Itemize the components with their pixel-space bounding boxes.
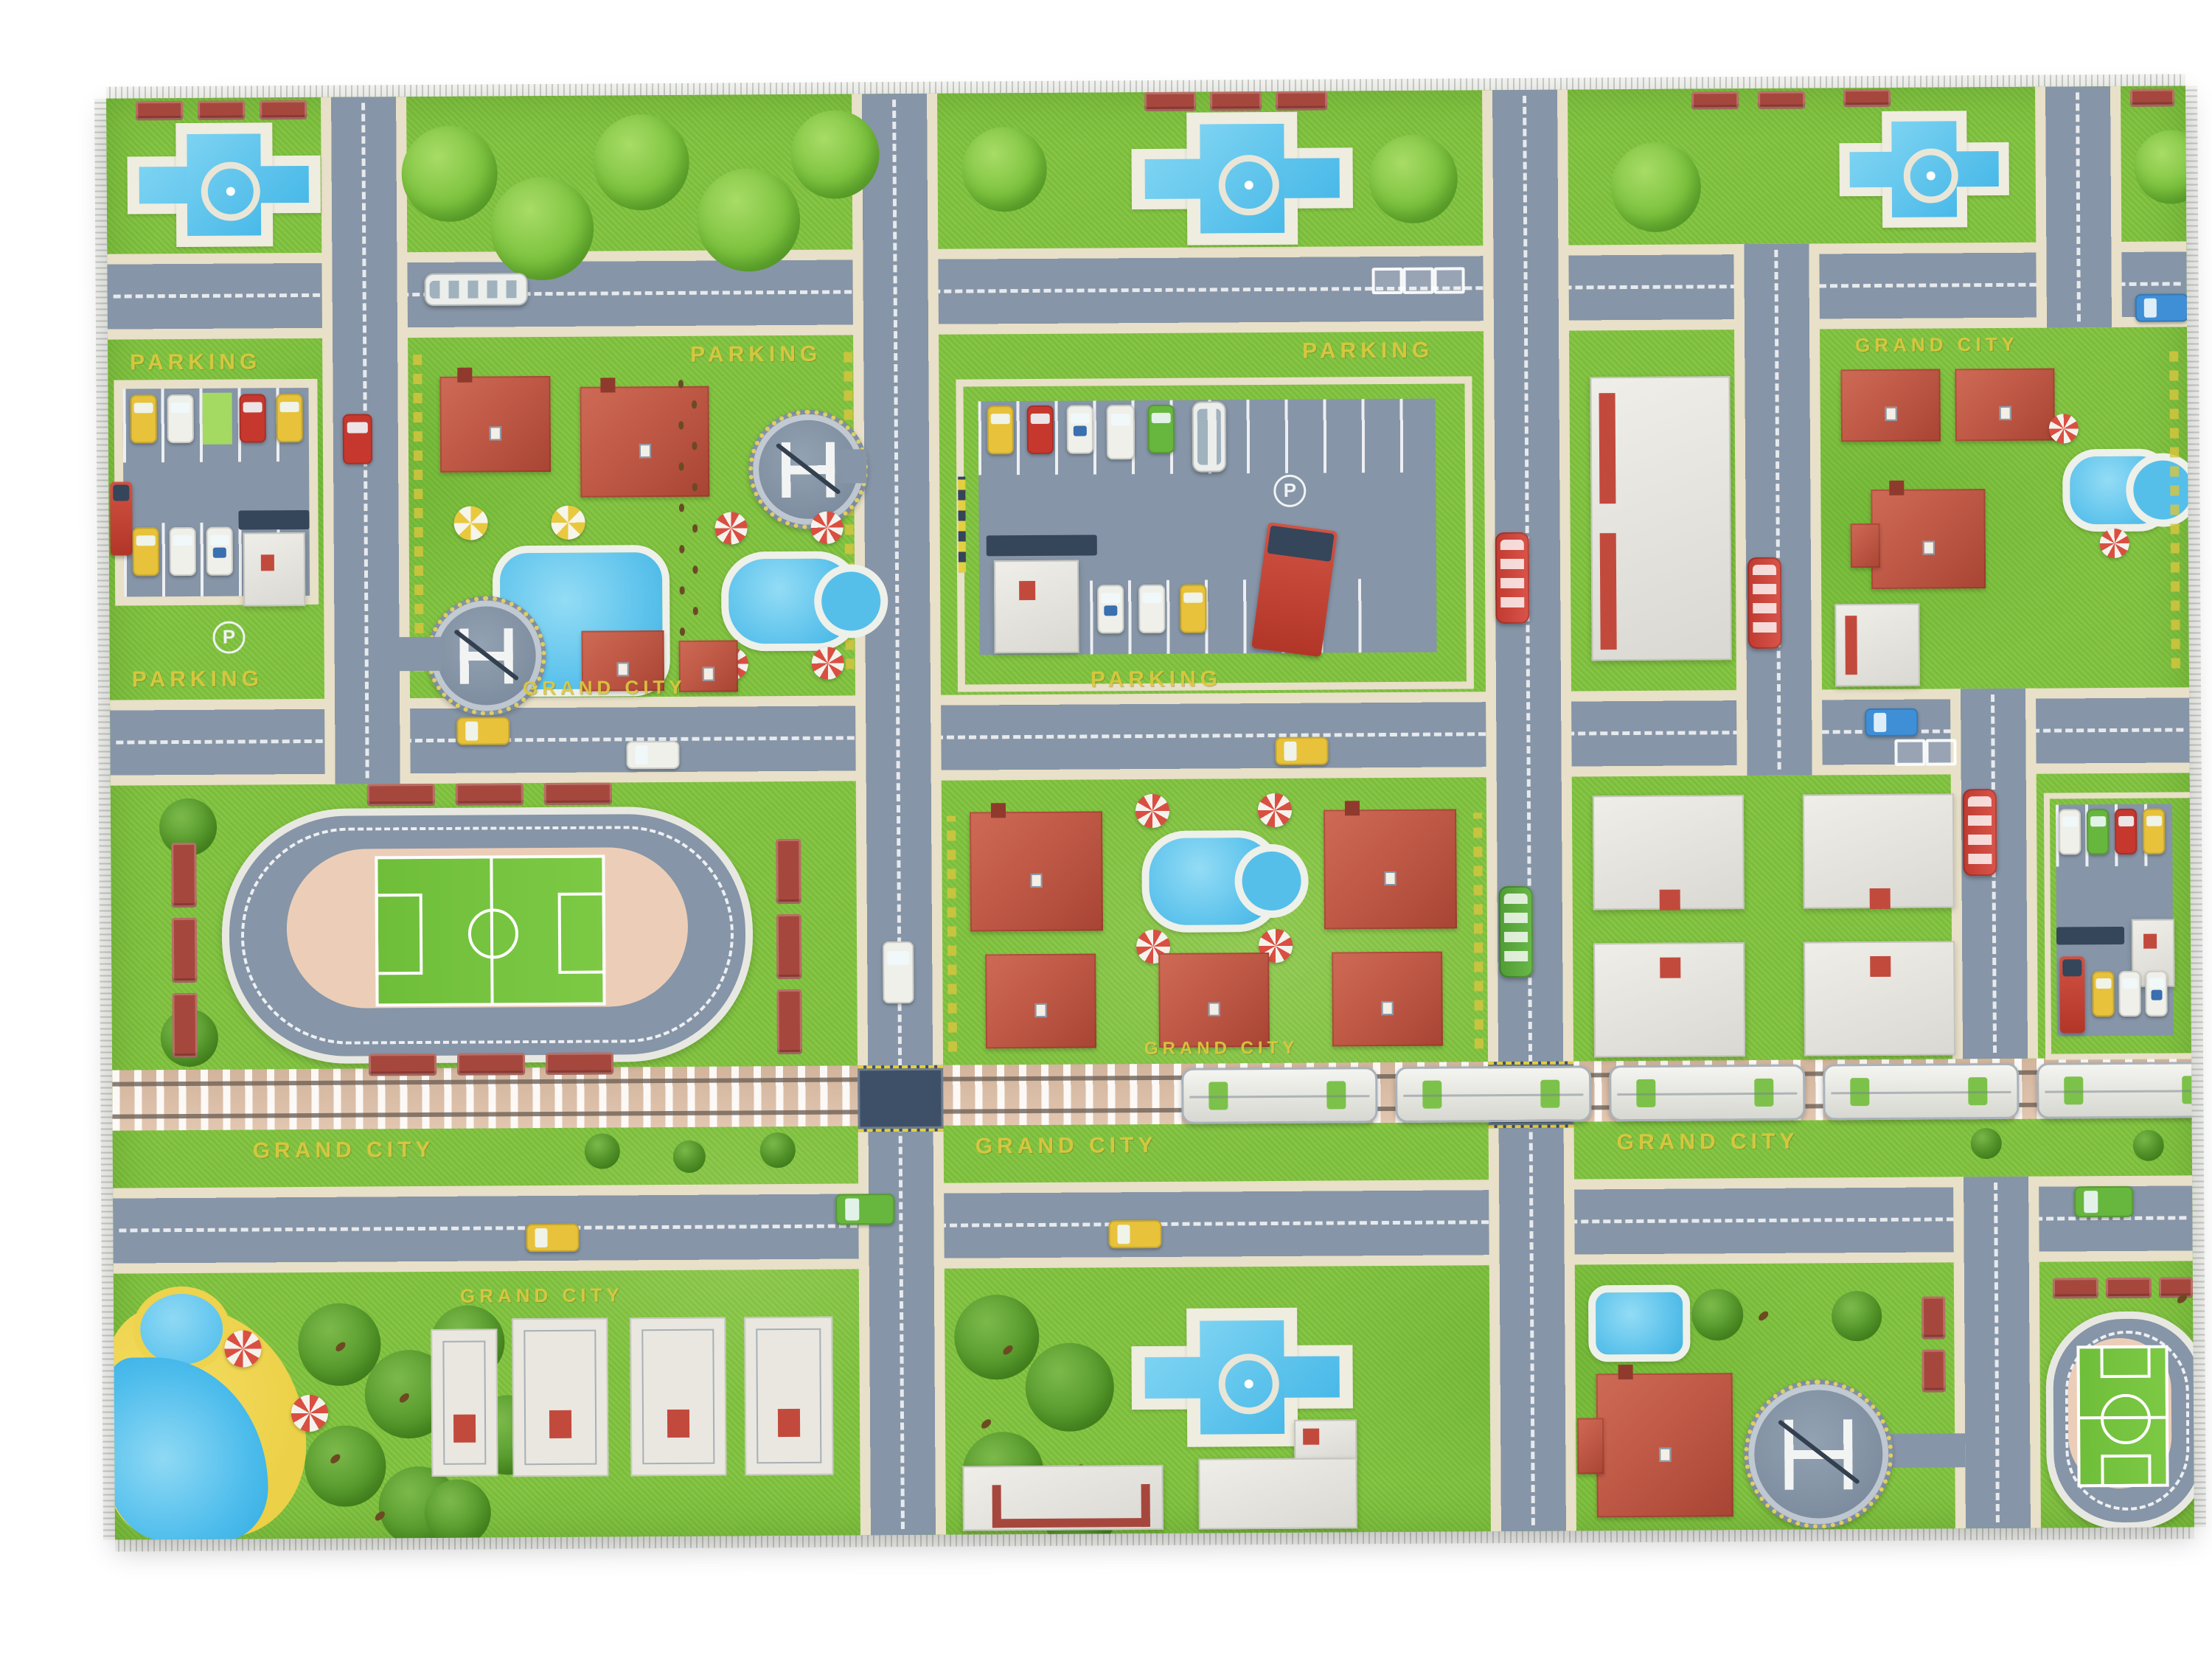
swimming-pool <box>1141 830 1282 933</box>
red-bus <box>1495 532 1530 624</box>
stadium-stand <box>172 993 198 1058</box>
city-play-rug: PARKING P PARKING PARKING <box>106 86 2194 1539</box>
goal-box <box>2100 1345 2151 1378</box>
parasol <box>291 1395 328 1432</box>
tree <box>961 127 1047 212</box>
green-car <box>1148 405 1175 453</box>
house-wing <box>1577 1418 1604 1474</box>
stadium-stand <box>369 1054 437 1076</box>
building <box>1834 604 1920 687</box>
hedge-border <box>413 355 424 672</box>
white-bus <box>425 273 528 306</box>
fountain-plaza <box>1839 111 2009 228</box>
red-car <box>1027 405 1054 454</box>
house <box>439 376 551 473</box>
crosswalk <box>827 1152 975 1300</box>
police-car <box>1067 405 1093 453</box>
police-car <box>206 527 233 576</box>
railroad-crossing <box>858 1065 944 1132</box>
white-bus <box>1192 401 1227 472</box>
bus-stop-marking <box>1925 739 1956 765</box>
white-car <box>626 741 679 769</box>
parasol <box>812 647 844 680</box>
taxi <box>456 717 509 745</box>
white-van <box>883 941 914 1003</box>
red-truck <box>2059 956 2085 1033</box>
helipad <box>1744 1379 1893 1529</box>
stadium-stand <box>776 839 801 904</box>
soccer-field <box>375 855 605 1007</box>
tree <box>1025 1343 1114 1432</box>
bus-stop-marking <box>1433 267 1464 293</box>
blue-car <box>2135 293 2188 321</box>
parasol <box>1258 793 1292 827</box>
crosswalk <box>1458 1148 1606 1296</box>
stadium-stand <box>172 918 198 983</box>
white-car <box>1138 585 1165 633</box>
tree <box>585 1133 620 1169</box>
hedge-border <box>947 816 957 1052</box>
red-car <box>2115 809 2137 854</box>
train-car <box>1823 1063 2019 1121</box>
park-bench <box>260 100 307 119</box>
soccer-field <box>2076 1345 2168 1488</box>
hedge-text: PARKING <box>1302 338 1433 364</box>
building <box>1198 1458 1357 1529</box>
tree <box>305 1425 386 1507</box>
tree <box>673 1141 706 1173</box>
building-accent <box>1870 888 1891 909</box>
train-car <box>1395 1065 1591 1123</box>
house <box>1158 953 1270 1048</box>
hedge-text: GRAND CITY <box>523 676 686 700</box>
park-bench <box>1758 91 1805 109</box>
bus-stop-marking <box>1894 739 1925 766</box>
taxi <box>133 527 159 576</box>
hedge-text: PARKING <box>1091 666 1222 692</box>
helipad-access-road <box>390 637 442 671</box>
hedge-text: GRAND CITY <box>975 1133 1158 1160</box>
parasol <box>551 506 585 540</box>
crosswalk <box>821 217 970 366</box>
bus-stop-marking <box>1371 268 1402 294</box>
taxi <box>2143 809 2165 854</box>
taxi <box>276 394 303 442</box>
park-bench <box>1276 91 1327 111</box>
white-van <box>2118 971 2140 1017</box>
crosswalk <box>824 664 973 812</box>
taxi <box>1108 1220 1161 1248</box>
tree <box>1368 134 1458 223</box>
hedge-text: PARKING <box>130 349 261 375</box>
building-accent <box>1660 958 1680 978</box>
building <box>962 1465 1164 1531</box>
stadium-stand <box>2159 1277 2193 1298</box>
park-bench <box>1210 91 1262 111</box>
blue-car <box>1865 708 1918 737</box>
building <box>1590 376 1731 661</box>
footprint-trail <box>674 375 702 670</box>
white-car <box>167 394 194 443</box>
house-plot <box>431 1329 498 1477</box>
police-car <box>1097 585 1124 633</box>
parasol <box>714 512 747 544</box>
parasol <box>453 506 487 540</box>
taxi <box>987 405 1014 454</box>
parking-barrier <box>958 477 966 573</box>
parasol <box>224 1330 261 1367</box>
hedge-text: GRAND CITY <box>460 1284 624 1307</box>
stadium-stand <box>776 989 802 1054</box>
stadium-stand <box>171 843 197 908</box>
train-car <box>1181 1067 1377 1124</box>
tree <box>593 114 689 211</box>
parasol <box>2100 529 2129 558</box>
tree <box>760 1132 796 1168</box>
house <box>985 953 1096 1048</box>
building <box>1294 1419 1357 1461</box>
bird <box>1757 1310 1770 1321</box>
fountain-ring <box>1219 155 1279 215</box>
red-car <box>240 394 266 442</box>
parasol <box>2049 414 2079 443</box>
stadium-stand <box>367 784 435 807</box>
swimming-pool <box>1588 1285 1691 1362</box>
stadium-stand <box>2106 1278 2152 1298</box>
parasol <box>810 512 843 544</box>
crosswalk <box>1919 657 2067 805</box>
tree <box>401 125 498 222</box>
crosswalk <box>1703 212 1851 361</box>
play-rug-photo: PARKING P PARKING PARKING <box>94 74 2206 1551</box>
tree <box>1691 1289 1743 1340</box>
building-bench-detail <box>992 1484 1150 1528</box>
hedge-text: GRAND CITY <box>1617 1129 1799 1156</box>
tree <box>425 1479 492 1539</box>
park-bench <box>198 100 245 119</box>
green-car <box>2074 1186 2133 1217</box>
train-car <box>1609 1065 1805 1122</box>
stadium-stand <box>776 914 802 979</box>
tree <box>697 168 801 272</box>
hedge-border <box>2169 344 2180 668</box>
fountain-ring <box>1904 148 1958 203</box>
swimming-pool <box>2062 449 2174 532</box>
bus-stop-marking <box>1402 268 1433 294</box>
house-plot <box>744 1317 833 1476</box>
red-bus <box>1963 789 1997 876</box>
gas-station-canopy <box>987 534 1097 556</box>
red-truck <box>110 481 133 555</box>
white-car <box>170 527 196 576</box>
goal-box <box>2101 1455 2152 1487</box>
gas-station-door <box>261 554 274 571</box>
gas-station <box>994 560 1079 654</box>
park-bench <box>1691 91 1739 109</box>
tree <box>490 177 594 281</box>
building-accent <box>1303 1429 1319 1445</box>
parking-sign: P <box>1273 475 1306 507</box>
house <box>1840 369 1941 442</box>
tree <box>2134 130 2194 204</box>
house <box>970 811 1103 931</box>
house-plot <box>630 1317 726 1477</box>
house <box>1324 809 1457 929</box>
fountain-ring <box>1218 1354 1279 1414</box>
hedge-bench <box>1921 1296 1945 1339</box>
hedge-text: GRAND CITY <box>253 1138 435 1164</box>
parasol <box>1135 794 1169 828</box>
house <box>1955 368 2055 441</box>
taxi <box>1275 737 1328 765</box>
empty-stall <box>202 393 232 445</box>
tree <box>954 1295 1040 1380</box>
taxi <box>1180 585 1206 633</box>
bird <box>980 1418 993 1430</box>
house <box>1596 1373 1733 1517</box>
parking-sign: P <box>212 621 245 653</box>
fountain-ring <box>201 161 260 220</box>
swimming-pool <box>721 551 862 651</box>
building-accent <box>2143 934 2157 949</box>
park-bench <box>136 101 183 120</box>
hedge-bench <box>1921 1349 1945 1392</box>
goal-box <box>558 893 606 974</box>
tree <box>1971 1128 2002 1159</box>
police-car <box>2145 971 2167 1017</box>
fountain-plaza <box>127 122 321 248</box>
house <box>679 640 738 692</box>
stadium-stand <box>2053 1278 2098 1298</box>
crosswalk <box>1705 658 1854 807</box>
gas-station-canopy <box>238 510 309 530</box>
red-car <box>343 414 372 464</box>
tree <box>1832 1291 1882 1341</box>
taxi <box>2092 971 2114 1017</box>
green-car <box>2087 809 2109 854</box>
park-bench <box>2130 88 2174 106</box>
taxi <box>131 394 157 443</box>
tree <box>2133 1130 2164 1161</box>
building-accent <box>1660 890 1680 910</box>
stadium-stand <box>457 1053 525 1076</box>
stadium-stand <box>544 782 612 805</box>
hedge-text: GRAND CITY <box>1855 333 2019 357</box>
building-accent <box>1870 956 1891 977</box>
white-car <box>2059 809 2081 854</box>
house <box>1332 952 1443 1047</box>
taxi <box>526 1224 579 1252</box>
shelter-canopy <box>2056 927 2124 945</box>
green-car <box>835 1194 894 1225</box>
gas-station-door <box>1019 581 1035 600</box>
house-wing <box>1851 523 1880 568</box>
stadium-stand <box>546 1052 613 1075</box>
crosswalk <box>2005 211 2153 359</box>
hedge-text: PARKING <box>132 666 263 692</box>
crosswalk <box>1452 214 1600 362</box>
park-bench <box>1843 89 1891 107</box>
fountain-plaza <box>1131 111 1353 246</box>
park-bench <box>1144 92 1196 111</box>
house-plot <box>512 1318 608 1477</box>
green-bus <box>1499 886 1534 978</box>
gas-station <box>243 532 306 607</box>
red-bus <box>1747 557 1782 649</box>
helipad-access-road <box>840 449 866 483</box>
crosswalk <box>1455 660 1603 808</box>
stadium-stand <box>456 783 524 806</box>
crosswalk <box>1922 1145 2070 1293</box>
hedge-text: GRAND CITY <box>1144 1038 1299 1059</box>
building-accent <box>1600 533 1617 650</box>
building-accent <box>1599 393 1616 504</box>
hedge-border <box>1473 812 1484 1048</box>
tree <box>1610 142 1701 232</box>
tree <box>790 110 880 199</box>
goal-box <box>375 894 423 975</box>
hedge-text: PARKING <box>690 342 821 368</box>
building-accent <box>1845 616 1857 675</box>
white-van <box>1107 405 1135 459</box>
house <box>1871 489 1986 589</box>
train-car <box>2037 1062 2194 1119</box>
